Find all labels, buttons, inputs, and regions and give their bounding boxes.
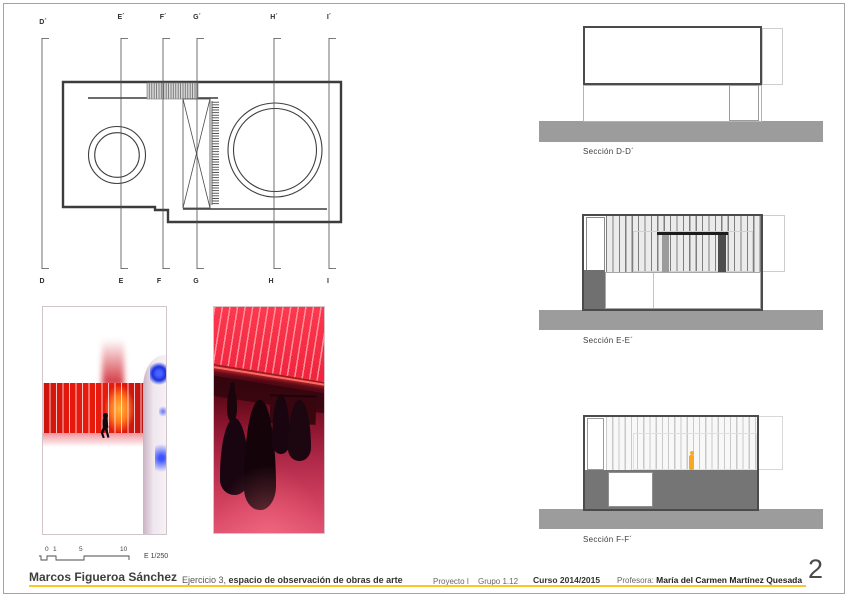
exercise-title-bold: espacio de observación de obras de arte <box>229 575 403 585</box>
course-label: Curso 2014/2015 <box>533 575 600 585</box>
solid-wall <box>584 270 605 309</box>
scale-tick-0: 0 <box>45 546 49 553</box>
exercise-title: Ejercicio 3, espacio de observación de o… <box>182 575 403 585</box>
blue-light-glow <box>155 439 167 478</box>
marker-label-g-bottom: G <box>188 278 204 285</box>
door-panel <box>587 418 604 470</box>
scale-tick-1: 1 <box>53 546 57 553</box>
building-upper-volume <box>583 26 762 85</box>
person-silhouette <box>98 413 113 446</box>
room-divider <box>653 273 654 308</box>
marker-label-i-top: I´ <box>321 14 337 21</box>
marker-label-f-top: F´ <box>155 14 171 21</box>
marker-label-e-bottom: E <box>113 278 129 285</box>
wall-slats <box>43 383 151 433</box>
drawing-sheet: D´ E´ F´ G´ H´ I´ D E F G H I Sección D-… <box>0 0 848 600</box>
ground-bar <box>539 121 823 142</box>
interior-opening <box>729 85 759 121</box>
scale-bar-graphic <box>38 553 133 562</box>
lower-room <box>605 272 761 309</box>
floor-reflection <box>43 433 149 447</box>
blue-light-glow <box>159 405 167 419</box>
marker-label-d-top: D´ <box>35 19 51 26</box>
ground-bar <box>539 310 823 330</box>
section-label: Sección E-E´ <box>583 336 633 345</box>
section-label: Sección D-D´ <box>583 147 634 156</box>
interior-opening <box>608 472 653 507</box>
accent-rule <box>29 585 806 587</box>
section-label: Sección F-F´ <box>583 535 632 544</box>
marker-label-d-bottom: D <box>34 278 50 285</box>
blue-light-glow <box>150 361 167 386</box>
page-number: 2 <box>808 554 823 585</box>
professor-credit: Profesora: María del Carmen Martínez Que… <box>617 575 802 585</box>
background-outline <box>633 231 753 272</box>
scale-tick-10: 10 <box>120 546 127 553</box>
marker-label-i-bottom: I <box>320 278 336 285</box>
red-light-column <box>102 339 124 387</box>
table-leg <box>662 235 669 272</box>
marker-label-f-bottom: F <box>151 278 167 285</box>
annex-outline <box>757 416 783 470</box>
table-leg <box>718 235 726 272</box>
author-name: Marcos Figueroa Sánchez <box>29 570 177 584</box>
person-figure <box>689 455 694 470</box>
annex-outline <box>762 28 783 85</box>
ground-bar <box>539 509 823 529</box>
background-outline <box>633 433 757 470</box>
exercise-prefix: Ejercicio 3, <box>182 575 226 585</box>
marker-label-h-bottom: H <box>263 278 279 285</box>
professor-name: María del Carmen Martínez Quesada <box>656 575 802 585</box>
plan-louver-hatch <box>147 83 198 99</box>
person-silhouette <box>227 388 237 422</box>
scale-ratio-label: E 1/250 <box>144 553 168 560</box>
marker-label-h-top: H´ <box>266 14 282 21</box>
scale-tick-5: 5 <box>79 546 83 553</box>
door-panel <box>586 217 605 271</box>
floor-glow <box>214 465 324 533</box>
installation-photo-red-gallery <box>42 306 167 535</box>
professor-label: Profesora: <box>617 576 654 585</box>
annex-outline <box>761 215 785 272</box>
marker-label-g-top: G´ <box>189 14 205 21</box>
marker-label-e-top: E´ <box>113 14 129 21</box>
plan-stair-core <box>183 99 219 208</box>
installation-photo-sculptures <box>213 306 325 534</box>
